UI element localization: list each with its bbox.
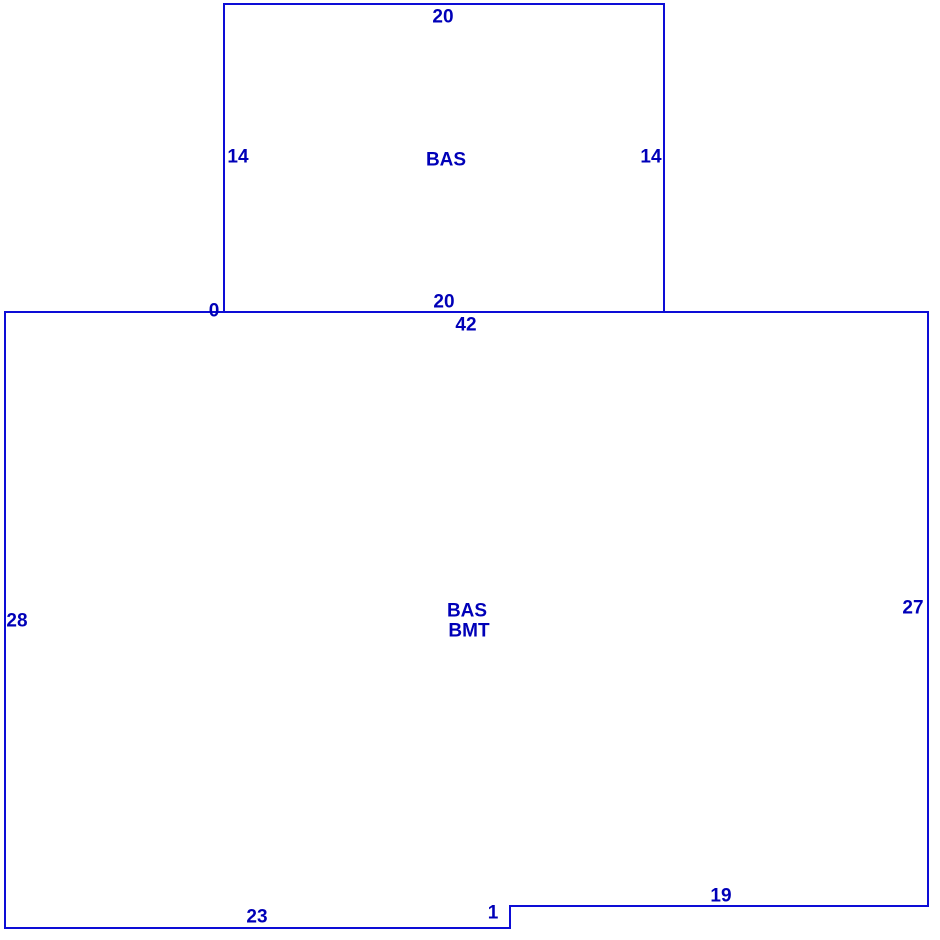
dim-label-upper-left: 14 xyxy=(227,148,248,167)
dim-label-lower-bottom-right: 19 xyxy=(710,887,731,906)
dim-label-lower-top: 42 xyxy=(455,316,476,335)
dim-label-step: 1 xyxy=(488,904,499,923)
dim-label-lower-bottom-left: 23 xyxy=(246,908,267,927)
building-outline-svg xyxy=(0,0,940,940)
junction-label-zero: 0 xyxy=(209,302,220,321)
dim-label-lower-left: 28 xyxy=(6,612,27,631)
sketch-canvas: 20 14 BAS 14 20 0 42 28 BAS BMT 27 19 1 … xyxy=(0,0,940,940)
dim-label-upper-bottom: 20 xyxy=(433,293,454,312)
area-label-lower-bmt: BMT xyxy=(448,622,489,641)
area-label-upper-bas: BAS xyxy=(426,151,466,170)
dim-label-upper-right: 14 xyxy=(640,148,661,167)
area-label-lower-bas: BAS xyxy=(447,602,487,621)
dim-label-lower-right: 27 xyxy=(902,599,923,618)
dim-label-upper-top: 20 xyxy=(432,8,453,27)
